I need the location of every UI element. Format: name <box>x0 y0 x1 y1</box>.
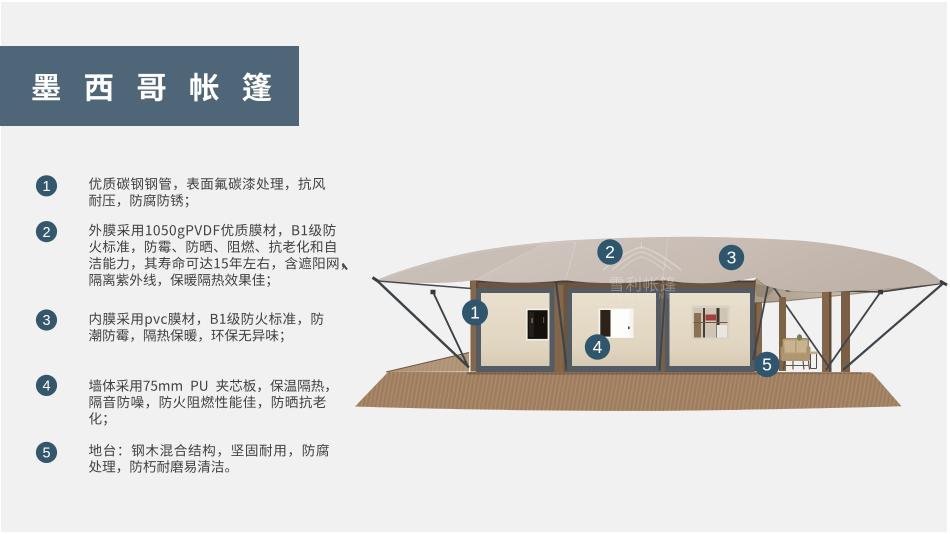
svg-text:2: 2 <box>605 242 615 262</box>
svg-text:2: 2 <box>42 225 50 241</box>
svg-text:4: 4 <box>593 337 603 357</box>
svg-text:5: 5 <box>42 446 50 462</box>
svg-text:3: 3 <box>42 313 50 329</box>
svg-text:XUELI TENT: XUELI TENT <box>611 294 672 301</box>
svg-text:4: 4 <box>42 379 50 395</box>
svg-text:3: 3 <box>727 248 737 268</box>
svg-text:1: 1 <box>470 303 480 323</box>
svg-text:1: 1 <box>42 179 50 195</box>
svg-text:5: 5 <box>762 355 772 375</box>
